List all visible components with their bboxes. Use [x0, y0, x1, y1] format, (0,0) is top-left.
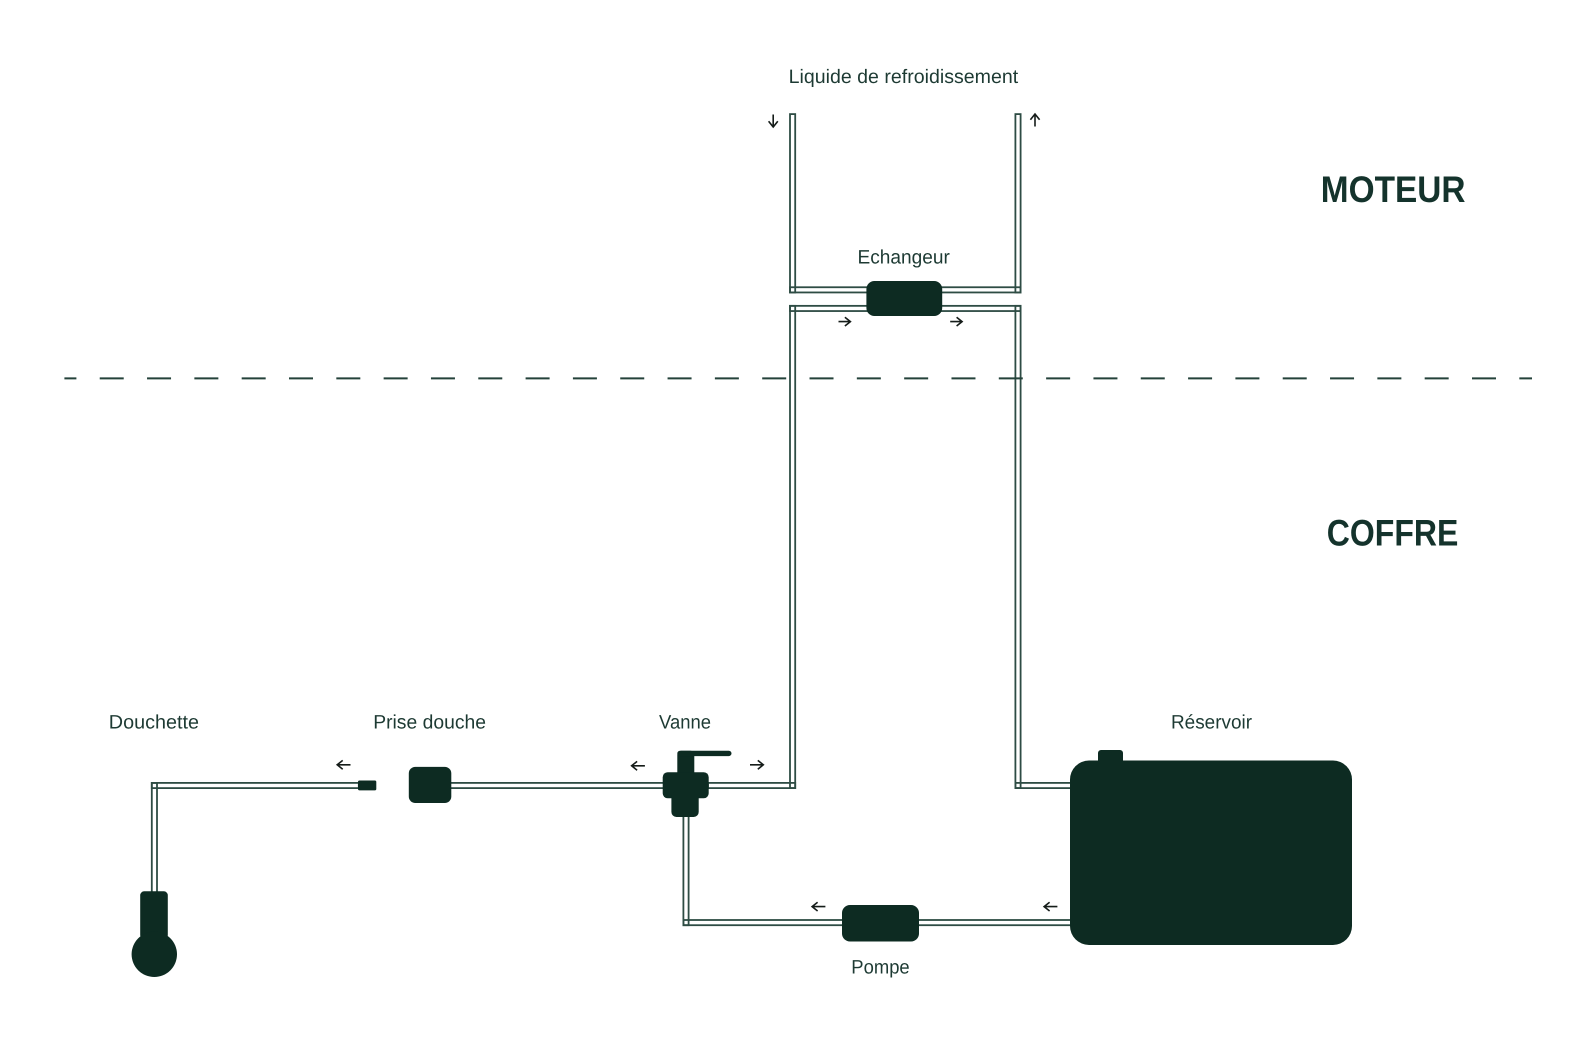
svg-text:Vanne: Vanne — [659, 712, 711, 734]
svg-text:Pompe: Pompe — [851, 957, 909, 979]
svg-text:MOTEUR: MOTEUR — [1321, 169, 1466, 210]
svg-text:COFFRE: COFFRE — [1327, 513, 1459, 554]
svg-text:Réservoir: Réservoir — [1171, 712, 1252, 734]
svg-text:Douchette: Douchette — [109, 712, 199, 734]
svg-text:Prise douche: Prise douche — [373, 712, 486, 734]
svg-text:Liquide de refroidissement: Liquide de refroidissement — [789, 66, 1019, 88]
svg-text:Echangeur: Echangeur — [858, 247, 951, 269]
